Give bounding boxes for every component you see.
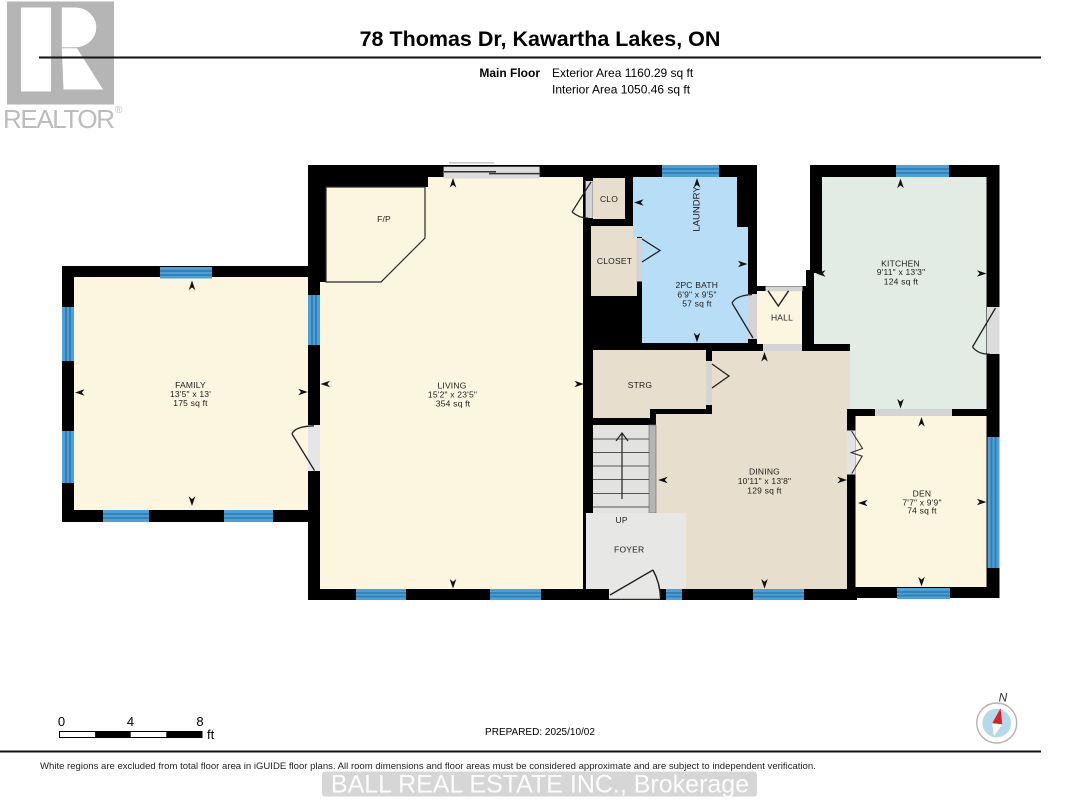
- svg-text:4: 4: [127, 714, 134, 729]
- svg-text:Main Floor: Main Floor: [479, 66, 540, 80]
- svg-text:LAUNDRY: LAUNDRY: [692, 186, 703, 232]
- svg-text:White regions are excluded fro: White regions are excluded from total fl…: [40, 761, 816, 772]
- svg-text:74 sq ft: 74 sq ft: [907, 506, 937, 516]
- svg-text:ft: ft: [207, 727, 215, 742]
- svg-text:PREPARED: 2025/10/02: PREPARED: 2025/10/02: [485, 727, 595, 738]
- svg-text:FOYER: FOYER: [614, 544, 644, 554]
- svg-text:REALTOR: REALTOR: [3, 104, 115, 134]
- svg-text:354 sq ft: 354 sq ft: [436, 398, 471, 408]
- svg-text:UP: UP: [615, 515, 627, 525]
- svg-text:57 sq ft: 57 sq ft: [682, 298, 712, 308]
- svg-text:2PC BATH: 2PC BATH: [676, 280, 719, 290]
- svg-text:N: N: [999, 691, 1008, 705]
- svg-text:10'11" x 13'8": 10'11" x 13'8": [738, 476, 792, 486]
- svg-text:®: ®: [115, 105, 123, 116]
- svg-text:8: 8: [196, 714, 203, 729]
- svg-text:129 sq ft: 129 sq ft: [747, 486, 782, 496]
- svg-text:CLO: CLO: [600, 194, 618, 204]
- svg-text:DINING: DINING: [749, 466, 780, 476]
- svg-text:0: 0: [58, 714, 65, 729]
- svg-text:175 sq ft: 175 sq ft: [173, 398, 208, 408]
- svg-text:CLOSET: CLOSET: [597, 256, 632, 266]
- svg-text:124 sq ft: 124 sq ft: [884, 277, 919, 287]
- svg-text:HALL: HALL: [771, 312, 793, 322]
- svg-text:78 Thomas Dr, Kawartha Lakes,: 78 Thomas Dr, Kawartha Lakes, ON: [360, 27, 721, 51]
- svg-text:F/P: F/P: [377, 214, 391, 224]
- svg-text:BALL REAL ESTATE INC., Brokera: BALL REAL ESTATE INC., Brokerage: [331, 771, 749, 799]
- svg-text:Interior Area 1050.46 sq ft: Interior Area 1050.46 sq ft: [552, 83, 691, 97]
- svg-text:Exterior Area 1160.29 sq ft: Exterior Area 1160.29 sq ft: [552, 66, 694, 80]
- svg-text:STRG: STRG: [628, 380, 652, 390]
